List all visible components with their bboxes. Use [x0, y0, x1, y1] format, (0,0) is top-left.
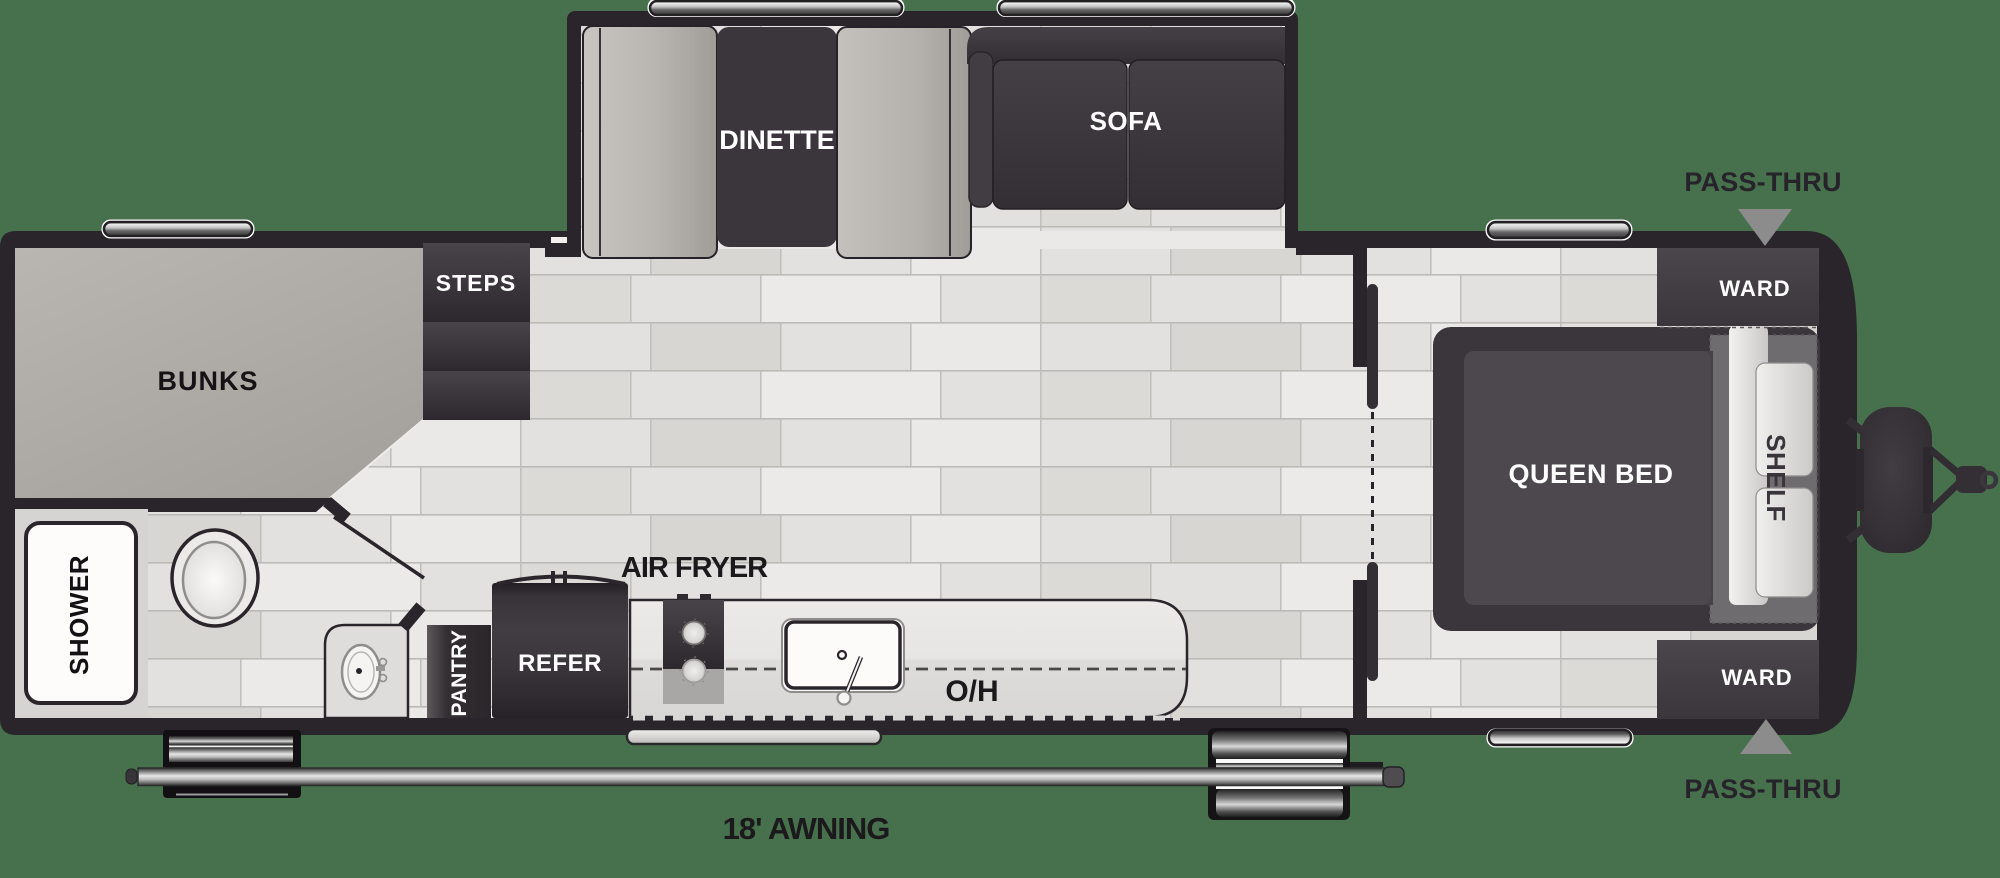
- svg-text:18' AWNING: 18' AWNING: [723, 811, 890, 846]
- svg-text:REFER: REFER: [518, 650, 602, 677]
- svg-text:PASS-THRU: PASS-THRU: [1684, 167, 1841, 197]
- svg-text:SOFA: SOFA: [1090, 106, 1163, 136]
- svg-text:SHELF: SHELF: [1761, 434, 1791, 522]
- svg-text:STEPS: STEPS: [436, 270, 516, 296]
- svg-text:SHOWER: SHOWER: [64, 555, 94, 675]
- svg-text:PANTRY: PANTRY: [448, 630, 471, 717]
- svg-text:DINETTE: DINETTE: [719, 125, 835, 155]
- svg-text:QUEEN BED: QUEEN BED: [1508, 459, 1673, 489]
- svg-text:WARD: WARD: [1721, 665, 1792, 690]
- svg-text:BUNKS: BUNKS: [157, 366, 258, 396]
- svg-text:AIR FRYER: AIR FRYER: [621, 552, 768, 584]
- svg-text:WARD: WARD: [1719, 276, 1790, 301]
- svg-text:PASS-THRU: PASS-THRU: [1684, 774, 1841, 804]
- svg-text:O/H: O/H: [945, 675, 998, 708]
